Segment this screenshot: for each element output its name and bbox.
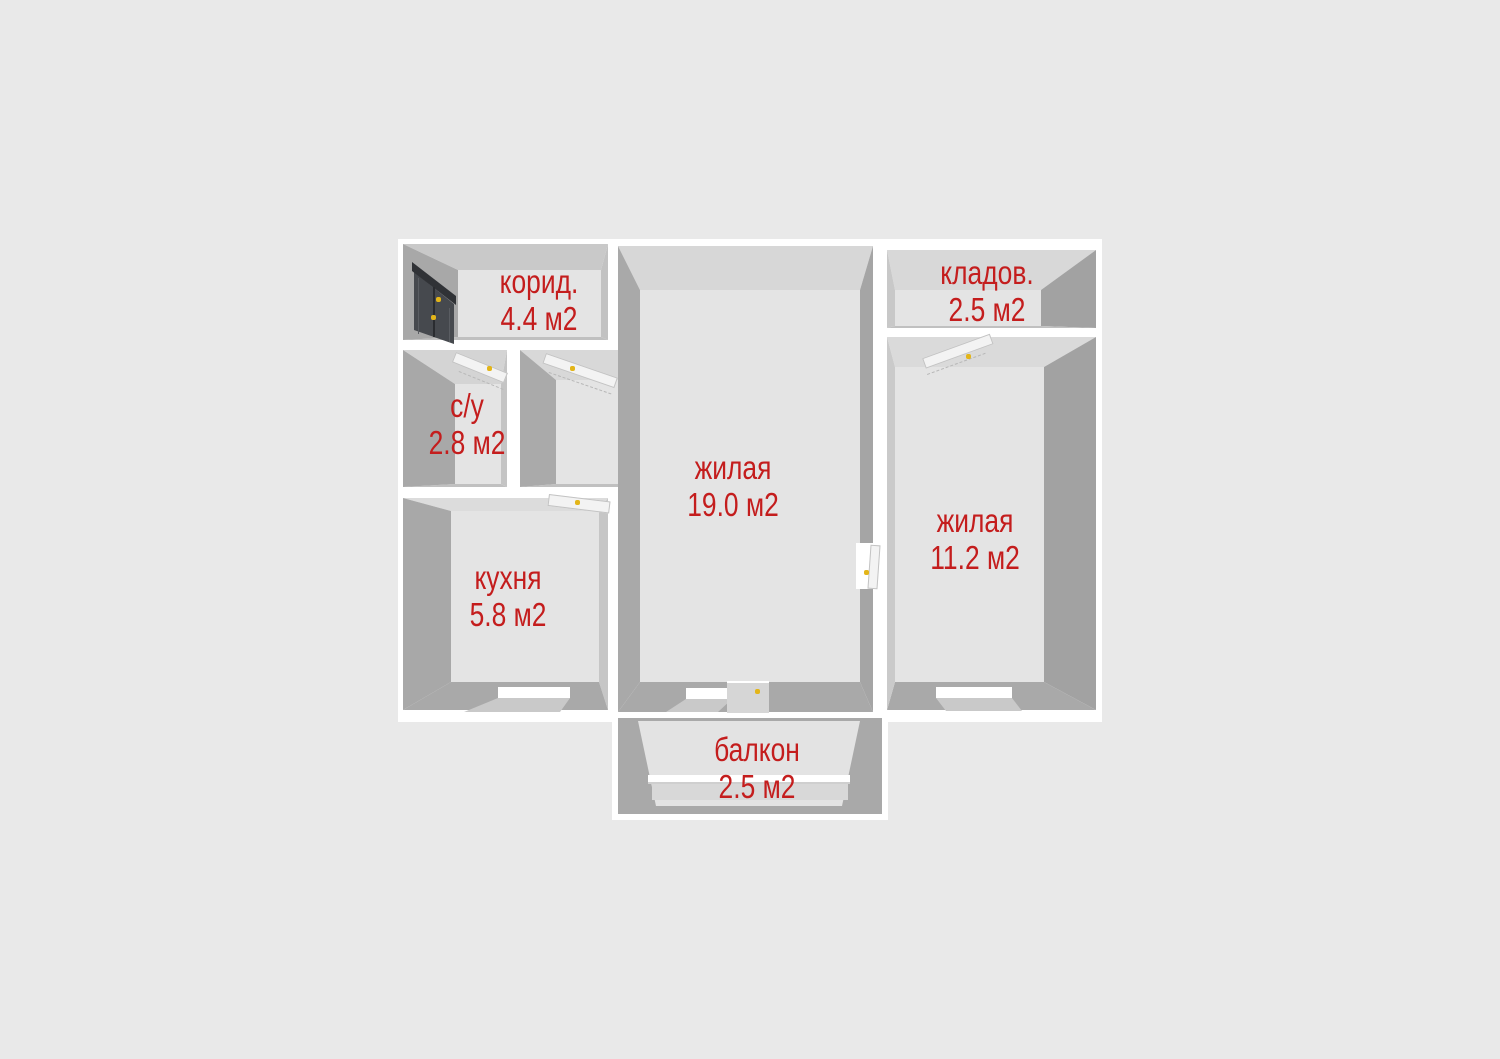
room-label-bathroom: с/у2.8 м2: [419, 387, 515, 461]
room-label-storage: кладов.2.5 м2: [929, 254, 1046, 328]
window-bedroom: [936, 687, 1012, 698]
room-label-corridor: корид.4.4 м2: [490, 263, 588, 337]
balcony-door-handle-icon: [755, 689, 760, 694]
rooms-layer: [0, 0, 1500, 1059]
door-handle-storage-icon: [966, 354, 971, 359]
door-handle-kitchen-icon: [575, 500, 580, 505]
balcony-door: [727, 681, 769, 713]
room-area: 5.8 м2: [470, 596, 547, 633]
room-name: кладов.: [940, 254, 1033, 291]
room-name: корид.: [500, 263, 579, 300]
window-sill-bedroom: [936, 698, 1022, 711]
window-living: [686, 688, 732, 699]
room-area: 11.2 м2: [930, 539, 1020, 576]
room-label-living: жилая19.0 м2: [676, 449, 790, 523]
room-name: кухня: [470, 559, 547, 596]
room-area: 2.5 м2: [714, 768, 800, 805]
room-floor-hall: [556, 380, 618, 484]
room-name: балкон: [714, 731, 800, 768]
wardrobe-panel-line-left: [418, 278, 419, 334]
room-area: 2.8 м2: [429, 424, 506, 461]
room-area: 19.0 м2: [687, 486, 779, 523]
room-name: с/у: [429, 387, 506, 424]
door-handle-bathroom-icon: [487, 366, 492, 371]
wardrobe-handle2-icon: [431, 315, 436, 320]
wardrobe-door-gap: [433, 287, 435, 337]
room-label-bedroom: жилая11.2 м2: [919, 502, 1031, 576]
room-area: 4.4 м2: [500, 300, 579, 337]
room-area: 2.5 м2: [940, 291, 1033, 328]
room-label-kitchen: кухня5.8 м2: [460, 559, 556, 633]
door-handle-hall-icon: [570, 366, 575, 371]
room-name: жилая: [930, 502, 1020, 539]
wardrobe-handle-icon: [436, 297, 441, 302]
wardrobe-panel-line-right: [449, 308, 450, 342]
door-handle-bedroom-icon: [864, 570, 869, 575]
room-label-balcony: балкон2.5 м2: [703, 731, 810, 805]
window-kitchen: [498, 687, 570, 698]
room-name: жилая: [687, 449, 779, 486]
floor-plan: корид.4.4 м2 кладов.2.5 м2 с/у2.8 м2 жил…: [0, 0, 1500, 1059]
